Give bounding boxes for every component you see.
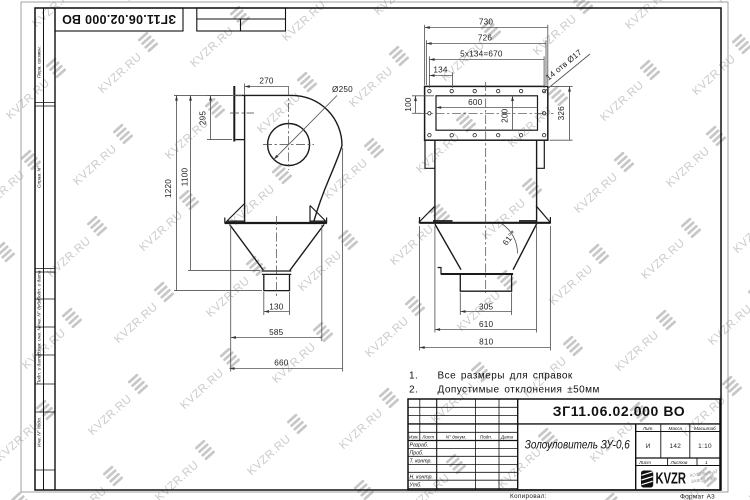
svg-text:Все размеры для справок: Все размеры для справок	[438, 370, 573, 381]
svg-text:Справ. N°: Справ. N°	[37, 166, 43, 188]
svg-text:Подп. и дата: Подп. и дата	[37, 354, 43, 384]
svg-text:130: 130	[269, 302, 284, 311]
svg-text:Инв. N° подл.: Инв. N° подл.	[37, 417, 43, 447]
svg-text:810: 810	[479, 337, 494, 346]
svg-text:5x134=670: 5x134=670	[460, 50, 503, 59]
svg-text:ЗГ11.06.02.000 ВО: ЗГ11.06.02.000 ВО	[553, 403, 685, 419]
svg-text:730: 730	[479, 18, 494, 27]
svg-text:Проб.: Проб.	[410, 451, 424, 457]
svg-text:Подп. и дата: Подп. и дата	[37, 270, 43, 300]
svg-text:585: 585	[269, 328, 284, 337]
svg-text:1: 1	[705, 460, 708, 465]
svg-text:326: 326	[557, 106, 566, 121]
svg-text:1100: 1100	[181, 168, 190, 187]
svg-text:1.: 1.	[409, 370, 418, 381]
svg-text:Масса: Масса	[669, 426, 683, 431]
svg-text:600: 600	[468, 98, 483, 107]
svg-text:ЗГ11.06.02.000 ВО: ЗГ11.06.02.000 ВО	[62, 12, 176, 26]
svg-text:610: 610	[479, 320, 494, 329]
svg-text:660: 660	[274, 358, 289, 367]
svg-text:N° докум.: N° докум.	[446, 435, 466, 440]
svg-text:1:10: 1:10	[698, 443, 712, 450]
svg-text:295: 295	[199, 111, 208, 126]
svg-text:Листов: Листов	[670, 460, 688, 465]
svg-text:100: 100	[404, 97, 413, 112]
svg-text:Формат А3: Формат А3	[680, 493, 715, 500]
svg-text:726: 726	[478, 33, 493, 42]
svg-text:134: 134	[433, 66, 448, 75]
svg-text:Лит.: Лит.	[642, 426, 654, 431]
svg-text:Т. контр.: Т. контр.	[410, 459, 432, 465]
svg-text:KVZR: KVZR	[656, 471, 687, 488]
svg-text:270: 270	[259, 76, 274, 85]
svg-text:Лист: Лист	[421, 435, 434, 440]
svg-text:Дата: Дата	[500, 435, 514, 440]
svg-text:Инв. N° дубл.: Инв. N° дубл.	[37, 298, 43, 328]
svg-text:1220: 1220	[164, 179, 173, 198]
svg-text:200: 200	[501, 108, 510, 123]
svg-text:Подп.: Подп.	[480, 435, 492, 440]
svg-text:Утб.: Утб.	[410, 483, 422, 489]
svg-text:Разраб.: Разраб.	[410, 443, 429, 449]
svg-text:Н. контр.: Н. контр.	[410, 475, 433, 481]
svg-text:Допустимые отклонения ±50мм: Допустимые отклонения ±50мм	[438, 385, 600, 396]
svg-text:Перв. примен.: Перв. примен.	[37, 46, 43, 78]
svg-text:142: 142	[670, 443, 682, 450]
svg-text:Изм.: Изм.	[409, 435, 419, 440]
svg-text:Взам. инв. N: Взам. инв. N	[37, 327, 43, 355]
svg-text:305: 305	[479, 303, 494, 312]
svg-text:Масштаб: Масштаб	[694, 426, 716, 431]
svg-text:И: И	[646, 443, 651, 450]
svg-text:Золоуловитель ЗУ-0,6: Золоуловитель ЗУ-0,6	[525, 440, 631, 452]
svg-text:Ø250: Ø250	[332, 85, 353, 94]
svg-text:Копировал:: Копировал:	[510, 493, 547, 500]
svg-text:Лист: Лист	[638, 460, 651, 465]
svg-text:2.: 2.	[409, 385, 418, 396]
